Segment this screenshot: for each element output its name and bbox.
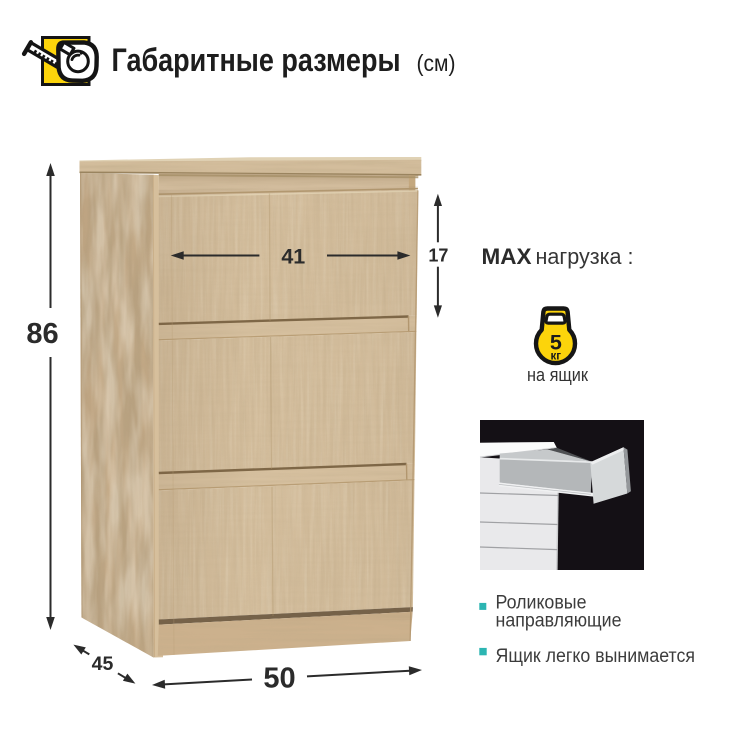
svg-text:45: 45 <box>92 653 114 675</box>
svg-text:Ящик легко вынимается: Ящик легко вынимается <box>496 646 696 667</box>
svg-text:17: 17 <box>428 245 448 265</box>
svg-text:кг: кг <box>551 351 562 363</box>
svg-text:на ящик: на ящик <box>527 365 588 385</box>
svg-text:направляющие: направляющие <box>496 611 622 632</box>
svg-text:Габаритные размеры: Габаритные размеры <box>112 42 401 78</box>
svg-text:MAX: MAX <box>482 244 532 269</box>
svg-text:41: 41 <box>281 245 305 269</box>
svg-text:нагрузка :: нагрузка : <box>536 244 634 269</box>
svg-text:(см): (см) <box>417 50 456 76</box>
svg-text:50: 50 <box>263 663 295 695</box>
svg-text:86: 86 <box>26 318 58 350</box>
